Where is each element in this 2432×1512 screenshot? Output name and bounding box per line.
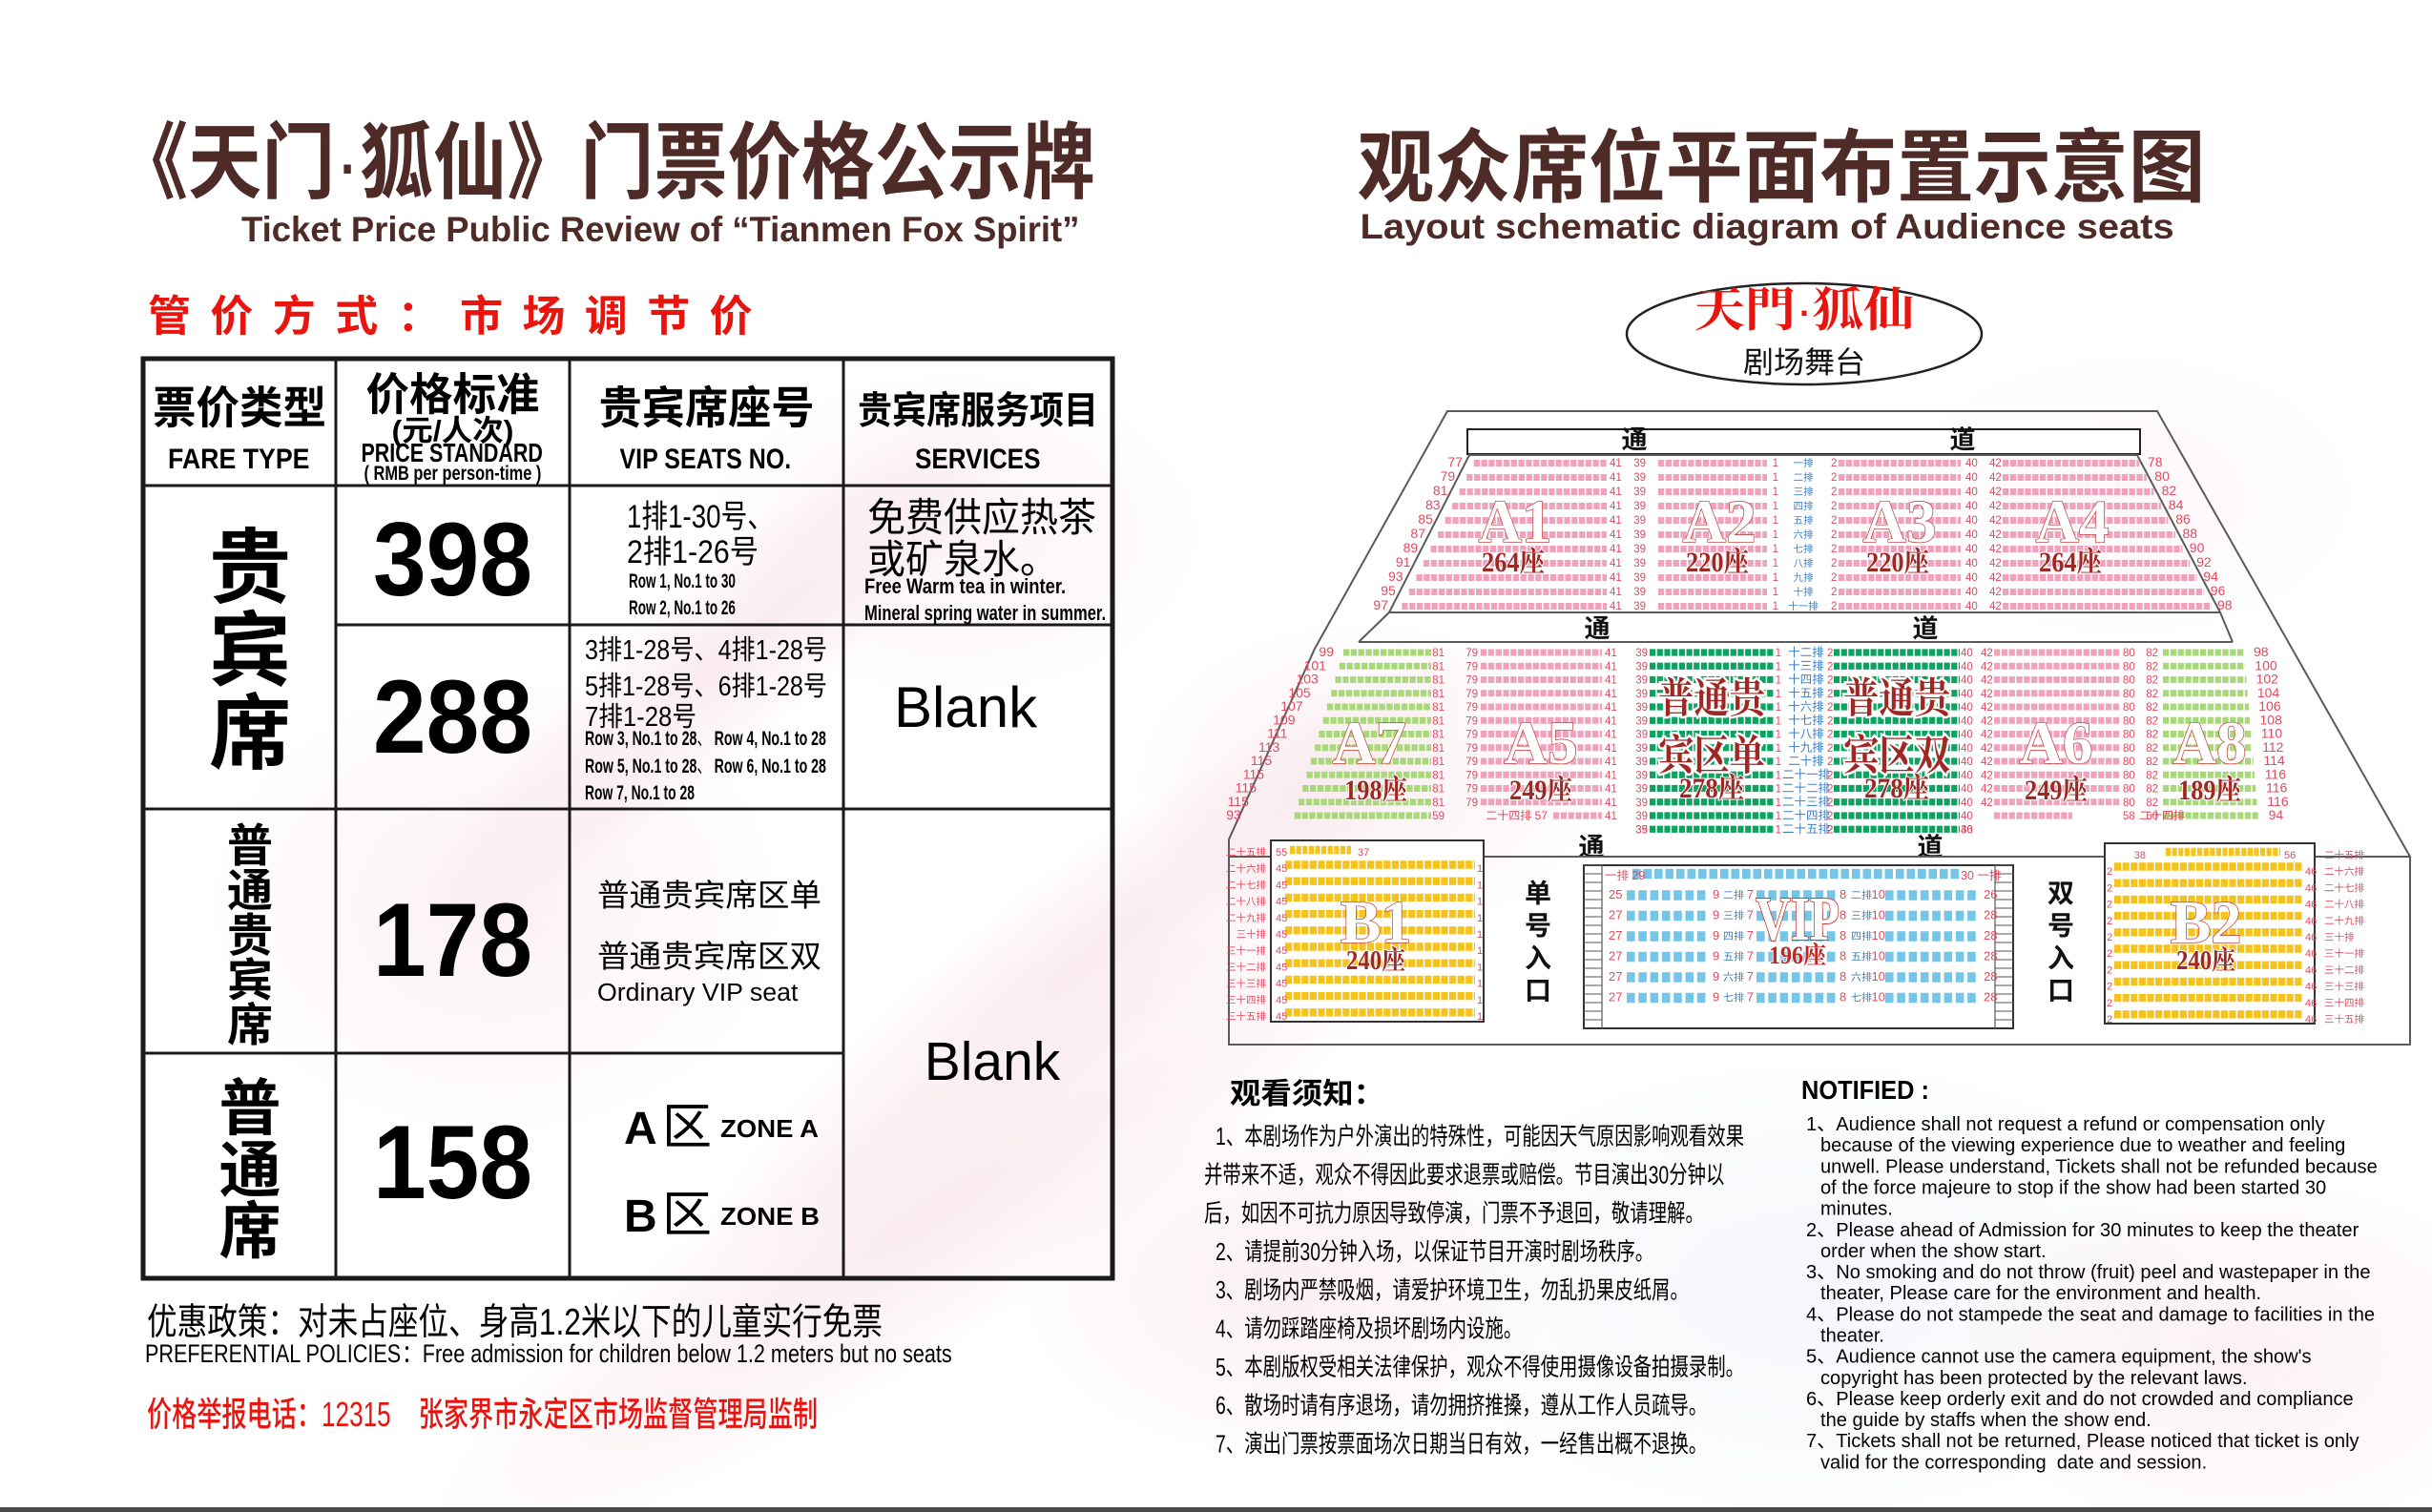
svg-text:57: 57	[1531, 809, 1548, 822]
svg-text:41: 41	[1610, 587, 1622, 598]
svg-text:41: 41	[1610, 544, 1622, 555]
svg-text:81: 81	[1432, 689, 1445, 700]
svg-text:1: 1	[1773, 458, 1778, 469]
svg-text:SERVICES: SERVICES	[915, 443, 1040, 474]
svg-text:9: 9	[1713, 990, 1719, 1005]
svg-text:1: 1	[1773, 601, 1778, 612]
svg-text:39: 39	[1635, 715, 1648, 727]
svg-text:288: 288	[373, 659, 532, 776]
svg-text:30: 30	[1649, 1160, 1670, 1188]
svg-text:42: 42	[1981, 648, 1993, 659]
svg-text:10: 10	[1872, 887, 1885, 901]
svg-text:VIP SEATS NO.: VIP SEATS NO.	[620, 443, 792, 475]
svg-text:41: 41	[1605, 797, 1617, 809]
svg-text:46: 46	[2305, 998, 2317, 1009]
svg-text:79: 79	[1465, 784, 1478, 796]
svg-text:order when the show start.: order when the show start.	[1820, 1241, 2047, 1262]
svg-text:26: 26	[1984, 887, 1997, 901]
svg-text:2: 2	[2107, 900, 2112, 911]
svg-text:41: 41	[1605, 715, 1617, 727]
svg-text:198: 198	[1344, 776, 1382, 807]
svg-text:2: 2	[2107, 882, 2112, 894]
svg-text:55: 55	[1276, 847, 1287, 859]
svg-text:39: 39	[1633, 458, 1646, 469]
svg-text:1-28: 1-28	[756, 670, 803, 701]
svg-text:8: 8	[1840, 928, 1846, 942]
svg-text:28: 28	[1984, 969, 1997, 984]
svg-text:7: 7	[1747, 908, 1754, 922]
svg-text:46: 46	[2305, 916, 2317, 927]
svg-text:39: 39	[1635, 675, 1648, 687]
svg-text:minutes.: minutes.	[1820, 1198, 1893, 1219]
svg-text:79: 79	[1465, 743, 1478, 755]
svg-text:4: 4	[1216, 1315, 1226, 1342]
svg-text:264: 264	[2039, 548, 2077, 579]
svg-text:39: 39	[1635, 730, 1648, 741]
svg-text:42: 42	[1989, 601, 2002, 612]
svg-text:40: 40	[1965, 458, 1978, 469]
svg-text:( RMB per person-time ): ( RMB per person-time )	[364, 462, 542, 484]
svg-text:2: 2	[1827, 689, 1833, 700]
svg-text:No smoking and do not throw (f: No smoking and do not throw (fruit) peel…	[1836, 1262, 2370, 1283]
svg-text:10: 10	[1872, 949, 1885, 963]
svg-text:41: 41	[1605, 675, 1617, 687]
svg-text:2: 2	[1827, 730, 1833, 741]
svg-text:42: 42	[1989, 501, 2002, 512]
svg-text:B: B	[624, 1191, 657, 1242]
svg-text:Row 3, No.1 to 28: Row 3, No.1 to 28	[585, 727, 696, 749]
svg-text:Row 1, No.1 to 30: Row 1, No.1 to 30	[629, 570, 736, 592]
svg-text:Free admission for children be: Free admission for children below 1.2 me…	[423, 1340, 952, 1369]
svg-text:40: 40	[1965, 472, 1978, 484]
svg-text:1: 1	[1806, 1114, 1817, 1135]
svg-text:46: 46	[2305, 900, 2317, 911]
svg-text:39: 39	[1635, 770, 1648, 781]
svg-text:1: 1	[1776, 797, 1781, 809]
svg-text:3: 3	[1216, 1275, 1226, 1303]
svg-text:1: 1	[1773, 472, 1778, 484]
svg-text:81: 81	[1432, 797, 1445, 809]
svg-text:41: 41	[1610, 515, 1622, 527]
svg-text:41: 41	[1610, 458, 1622, 469]
svg-text:27: 27	[1609, 928, 1622, 942]
svg-text:7: 7	[1806, 1431, 1817, 1452]
svg-text:41: 41	[1605, 702, 1617, 714]
svg-text:2: 2	[1831, 487, 1837, 498]
svg-text:42: 42	[1989, 544, 2002, 555]
svg-text:249: 249	[1509, 776, 1548, 807]
svg-text:6: 6	[1216, 1391, 1226, 1419]
svg-text:Audience cannot use the camera: Audience cannot use the camera equipment…	[1836, 1347, 2311, 1368]
svg-text:7: 7	[1216, 1430, 1226, 1458]
svg-text:96: 96	[2211, 583, 2226, 598]
svg-text:2: 2	[2107, 866, 2112, 878]
svg-text:42: 42	[1981, 743, 1993, 755]
svg-text:5: 5	[1216, 1353, 1226, 1380]
svg-text:39: 39	[1633, 487, 1646, 498]
svg-text:42: 42	[1981, 756, 1993, 768]
svg-text:81: 81	[1432, 675, 1445, 687]
svg-text:39: 39	[1635, 811, 1648, 822]
svg-text:42: 42	[1981, 675, 1993, 687]
svg-text:79: 79	[1465, 689, 1478, 700]
svg-text:81: 81	[1432, 743, 1445, 755]
svg-text:98: 98	[2217, 597, 2233, 612]
svg-text:2: 2	[1827, 675, 1833, 687]
svg-text:398: 398	[373, 502, 532, 618]
svg-text:240: 240	[2176, 945, 2212, 976]
svg-text:278: 278	[1864, 773, 1903, 805]
svg-text:Ticket Price Public Review of: Ticket Price Public Review of “Tianmen F…	[241, 210, 1079, 249]
svg-text:7: 7	[1747, 990, 1754, 1005]
svg-text:78: 78	[2148, 454, 2163, 469]
svg-text:79: 79	[1465, 797, 1478, 809]
svg-text:80: 80	[2123, 689, 2135, 700]
svg-text:35: 35	[1635, 824, 1648, 836]
svg-text:Layout schematic diagram of Au: Layout schematic diagram of Audience sea…	[1361, 207, 2174, 246]
svg-text:81: 81	[1432, 756, 1445, 768]
svg-text:2: 2	[1806, 1220, 1817, 1241]
svg-text:39: 39	[1635, 743, 1648, 755]
svg-text:189: 189	[2178, 776, 2216, 807]
svg-text:94: 94	[2203, 569, 2218, 584]
svg-text:12315: 12315	[322, 1396, 419, 1434]
svg-text:8: 8	[1840, 908, 1846, 922]
svg-text:2: 2	[1827, 661, 1833, 673]
svg-text:1: 1	[1477, 897, 1483, 908]
svg-text:2: 2	[2107, 1014, 2112, 1025]
svg-text:87: 87	[1410, 526, 1425, 541]
svg-text:81: 81	[1432, 730, 1445, 741]
svg-text:2: 2	[1827, 743, 1833, 755]
svg-text:9: 9	[1713, 887, 1719, 901]
svg-text:82: 82	[2146, 689, 2158, 700]
svg-text:27: 27	[1609, 990, 1622, 1005]
svg-text:7: 7	[1747, 969, 1754, 984]
svg-text:42: 42	[1989, 487, 2002, 498]
svg-text:79: 79	[1465, 770, 1478, 781]
svg-text:158: 158	[373, 1105, 532, 1221]
svg-text:41: 41	[1610, 501, 1622, 512]
svg-text:the guide by staffs when the s: the guide by staffs when the show end.	[1820, 1410, 2151, 1431]
svg-text:9: 9	[1713, 969, 1719, 984]
svg-text:3: 3	[1806, 1262, 1817, 1283]
svg-text:40: 40	[1965, 587, 1978, 598]
svg-text:40: 40	[1961, 689, 1973, 700]
svg-text:2: 2	[1831, 501, 1837, 512]
svg-text:1: 1	[627, 498, 641, 534]
svg-text:39: 39	[1635, 756, 1648, 768]
svg-text:92: 92	[2196, 554, 2212, 570]
svg-text:1: 1	[1776, 770, 1781, 781]
svg-text:80: 80	[2123, 784, 2135, 796]
svg-text:42: 42	[1989, 515, 2002, 527]
svg-text:8: 8	[1840, 949, 1846, 963]
svg-text:79: 79	[1465, 756, 1478, 768]
svg-text:5: 5	[1806, 1347, 1817, 1368]
svg-text:40: 40	[1961, 797, 1973, 809]
svg-text:FARE TYPE: FARE TYPE	[168, 444, 309, 476]
svg-text:40: 40	[1965, 515, 1978, 527]
svg-text:81: 81	[1432, 702, 1445, 714]
svg-text:83: 83	[1425, 497, 1441, 512]
svg-text:1-30: 1-30	[668, 498, 720, 534]
svg-text:2: 2	[2107, 948, 2112, 960]
svg-text:2: 2	[1827, 715, 1833, 727]
svg-text:ZONE A: ZONE A	[720, 1115, 819, 1143]
svg-text:42: 42	[1989, 572, 2002, 584]
svg-text:80: 80	[2123, 770, 2135, 781]
svg-text:1: 1	[1773, 515, 1778, 527]
svg-text:80: 80	[2123, 715, 2135, 727]
svg-text:42: 42	[1981, 689, 1993, 700]
svg-text:1: 1	[1776, 661, 1781, 673]
svg-text:2: 2	[2107, 964, 2112, 976]
svg-text:Please ahead of Admission for: Please ahead of Admission for 30 minutes…	[1836, 1220, 2359, 1241]
svg-text:80: 80	[2123, 756, 2135, 768]
svg-text:2: 2	[1827, 648, 1833, 659]
svg-text:46: 46	[2305, 982, 2317, 993]
svg-text:40: 40	[1961, 770, 1973, 781]
svg-text:45: 45	[1276, 913, 1287, 924]
svg-text:79: 79	[1465, 715, 1478, 727]
svg-text:41: 41	[1605, 730, 1617, 741]
svg-text:2: 2	[1827, 756, 1833, 768]
svg-text:91: 91	[1396, 554, 1411, 570]
svg-text:80: 80	[2123, 661, 2135, 673]
svg-text:81: 81	[1433, 483, 1448, 498]
svg-text:45: 45	[1276, 962, 1287, 973]
svg-text:220: 220	[1866, 548, 1904, 579]
svg-text:42: 42	[1981, 661, 1993, 673]
svg-text:1: 1	[1773, 487, 1778, 498]
svg-text:1: 1	[1776, 784, 1781, 796]
svg-text:1: 1	[1773, 501, 1778, 512]
svg-text:94: 94	[2269, 807, 2284, 822]
svg-text:42: 42	[1981, 797, 1993, 809]
svg-text:45: 45	[1276, 995, 1287, 1006]
svg-text:10: 10	[1872, 969, 1885, 984]
svg-text:81: 81	[1432, 661, 1445, 673]
svg-text:81: 81	[1432, 784, 1445, 796]
svg-text:40: 40	[1961, 756, 1973, 768]
svg-text:1: 1	[1477, 913, 1483, 924]
svg-text:1: 1	[1477, 1011, 1483, 1023]
svg-text:4: 4	[718, 633, 732, 665]
svg-text:40: 40	[1965, 544, 1978, 555]
svg-text:45: 45	[1276, 880, 1287, 891]
svg-text:A6: A6	[2020, 710, 2093, 777]
svg-text:Tickets shall not be returned,: Tickets shall not be returned, Please no…	[1836, 1431, 2359, 1452]
svg-text:2: 2	[1831, 472, 1837, 484]
svg-text:46: 46	[2305, 1014, 2317, 1025]
svg-text:2: 2	[1831, 544, 1837, 555]
svg-text:88: 88	[2183, 526, 2198, 541]
svg-text:A: A	[624, 1104, 657, 1154]
svg-text:93: 93	[1388, 569, 1403, 584]
svg-text:82: 82	[2146, 675, 2158, 687]
svg-text:82: 82	[2146, 797, 2158, 809]
svg-text:46: 46	[2305, 964, 2317, 976]
svg-text:81: 81	[1432, 648, 1445, 659]
svg-text:theater.: theater.	[1820, 1325, 1884, 1346]
svg-text:40: 40	[1965, 501, 1978, 512]
svg-text:1: 1	[1477, 979, 1483, 990]
svg-text:because of the viewing experie: because of the viewing experience due to…	[1820, 1135, 2345, 1156]
svg-text:39: 39	[1633, 587, 1646, 598]
svg-text:1: 1	[1477, 995, 1483, 1006]
svg-text:Mineral spring water in summer: Mineral spring water in summer.	[864, 602, 1106, 626]
svg-text:1-26: 1-26	[672, 533, 730, 570]
svg-text:1: 1	[1776, 811, 1781, 822]
svg-text:42: 42	[1989, 558, 2002, 570]
svg-text:·: ·	[1796, 283, 1813, 337]
svg-text:84: 84	[2169, 497, 2184, 512]
svg-text:1: 1	[1776, 702, 1781, 714]
svg-text:1: 1	[1216, 1122, 1226, 1150]
svg-text:1: 1	[1776, 648, 1781, 659]
svg-text:1: 1	[1776, 824, 1781, 836]
svg-text:2: 2	[627, 533, 643, 570]
svg-text:of the force majeure to stop i: of the force majeure to stop if the show…	[1820, 1177, 2326, 1198]
svg-text:40: 40	[1961, 675, 1973, 687]
svg-text:27: 27	[1609, 908, 1622, 922]
svg-text:240: 240	[1346, 945, 1382, 976]
svg-text:28: 28	[1984, 908, 1997, 922]
svg-text:40: 40	[1965, 601, 1978, 612]
svg-text:1: 1	[1477, 962, 1483, 973]
svg-text:46: 46	[2305, 882, 2317, 894]
svg-text:36: 36	[1961, 824, 1973, 836]
svg-text:Blank: Blank	[925, 1031, 1061, 1092]
svg-text:46: 46	[2305, 948, 2317, 960]
svg-text:2: 2	[1831, 558, 1837, 570]
svg-text:41: 41	[1605, 648, 1617, 659]
svg-text:97: 97	[1373, 597, 1388, 612]
svg-text:82: 82	[2162, 483, 2177, 498]
svg-text:Row 2, No.1 to 26: Row 2, No.1 to 26	[629, 596, 736, 619]
svg-text:39: 39	[1633, 601, 1646, 612]
svg-text:40: 40	[1961, 661, 1973, 673]
svg-text:4: 4	[1806, 1304, 1817, 1325]
svg-text:30: 30	[1961, 869, 1977, 882]
svg-text:9: 9	[1713, 908, 1719, 922]
svg-text:7: 7	[1747, 928, 1754, 942]
svg-text:copyright has been protected b: copyright has been protected by the rele…	[1820, 1368, 2248, 1389]
svg-text:41: 41	[1605, 784, 1617, 796]
svg-text:42: 42	[1981, 770, 1993, 781]
svg-text:1-28: 1-28	[756, 633, 803, 665]
svg-text:10: 10	[1872, 990, 1885, 1005]
svg-text:2: 2	[1831, 587, 1837, 598]
svg-text:90: 90	[2190, 540, 2205, 555]
svg-text:2: 2	[2107, 916, 2112, 927]
svg-text:5: 5	[585, 670, 598, 701]
svg-text:82: 82	[2146, 770, 2158, 781]
svg-text:79: 79	[1465, 702, 1478, 714]
svg-text:59: 59	[1432, 811, 1445, 822]
svg-text:Please keep orderly exit and d: Please keep orderly exit and do not crow…	[1836, 1389, 2353, 1410]
svg-text:1: 1	[1773, 544, 1778, 555]
svg-text:1: 1	[1773, 529, 1778, 541]
svg-text:7: 7	[1747, 887, 1754, 901]
svg-text:A4: A4	[2036, 488, 2110, 555]
svg-text:40: 40	[1961, 648, 1973, 659]
svg-text:39: 39	[1635, 797, 1648, 809]
svg-text:40: 40	[1965, 572, 1978, 584]
svg-text:41: 41	[1605, 770, 1617, 781]
svg-text:Row 7, No.1 to 28: Row 7, No.1 to 28	[585, 781, 695, 804]
svg-text:2: 2	[1831, 515, 1837, 527]
svg-text:58: 58	[2123, 811, 2135, 822]
svg-text:Row 6, No.1 to 28: Row 6, No.1 to 28	[711, 755, 826, 777]
svg-text:1: 1	[1776, 743, 1781, 755]
svg-text:28: 28	[1984, 949, 1997, 963]
svg-text:85: 85	[1418, 511, 1433, 527]
svg-text:39: 39	[1635, 702, 1648, 714]
svg-text:1.2: 1.2	[539, 1301, 581, 1343]
svg-text:80: 80	[2123, 648, 2135, 659]
svg-text:82: 82	[2146, 702, 2158, 714]
svg-text:46: 46	[2305, 866, 2317, 878]
svg-text:NOTIFIED :: NOTIFIED :	[1801, 1075, 1929, 1105]
svg-text:82: 82	[2146, 756, 2158, 768]
svg-text:41: 41	[1610, 529, 1622, 541]
svg-text:7: 7	[1747, 949, 1754, 963]
svg-text:79: 79	[1441, 468, 1456, 484]
svg-text:Audience shall not request a r: Audience shall not request a refund or c…	[1836, 1114, 2325, 1135]
svg-text:41: 41	[1605, 756, 1617, 768]
svg-text:1: 1	[1477, 880, 1483, 891]
svg-text:278: 278	[1679, 773, 1718, 805]
svg-text:1: 1	[1776, 730, 1781, 741]
svg-text:2: 2	[1831, 458, 1837, 469]
svg-text:40: 40	[1961, 702, 1973, 714]
svg-text:82: 82	[2146, 648, 2158, 659]
svg-text:79: 79	[1465, 730, 1478, 741]
svg-text:1: 1	[1776, 715, 1781, 727]
svg-text:41: 41	[1610, 472, 1622, 484]
svg-text:42: 42	[1981, 730, 1993, 741]
svg-text:2: 2	[2107, 982, 2112, 993]
svg-text:93: 93	[1226, 807, 1241, 822]
svg-text:6: 6	[1806, 1389, 1817, 1410]
svg-text:8: 8	[1840, 887, 1846, 901]
svg-text:82: 82	[2146, 661, 2158, 673]
svg-text:41: 41	[1605, 743, 1617, 755]
svg-text:40: 40	[1961, 715, 1973, 727]
svg-text:A2: A2	[1683, 488, 1756, 555]
svg-text:1: 1	[1773, 572, 1778, 584]
svg-text:37: 37	[1358, 847, 1369, 859]
svg-text:2: 2	[1216, 1237, 1226, 1265]
svg-text:46: 46	[2305, 932, 2317, 943]
svg-text:39: 39	[1635, 661, 1648, 673]
svg-text:27: 27	[1609, 969, 1622, 984]
svg-text:39: 39	[1633, 501, 1646, 512]
svg-text:39: 39	[1633, 544, 1646, 555]
svg-text:9: 9	[1713, 949, 1719, 963]
svg-text:86: 86	[2175, 511, 2191, 527]
svg-text:42: 42	[1989, 587, 2002, 598]
svg-text:41: 41	[1605, 811, 1617, 822]
svg-text:39: 39	[1633, 515, 1646, 527]
svg-text:39: 39	[1633, 572, 1646, 584]
svg-text:56: 56	[2284, 850, 2296, 861]
svg-text:1-28: 1-28	[622, 670, 670, 701]
svg-text:PREFERENTIAL POLICIES: PREFERENTIAL POLICIES	[145, 1340, 401, 1369]
svg-text:A7: A7	[1333, 710, 1406, 777]
